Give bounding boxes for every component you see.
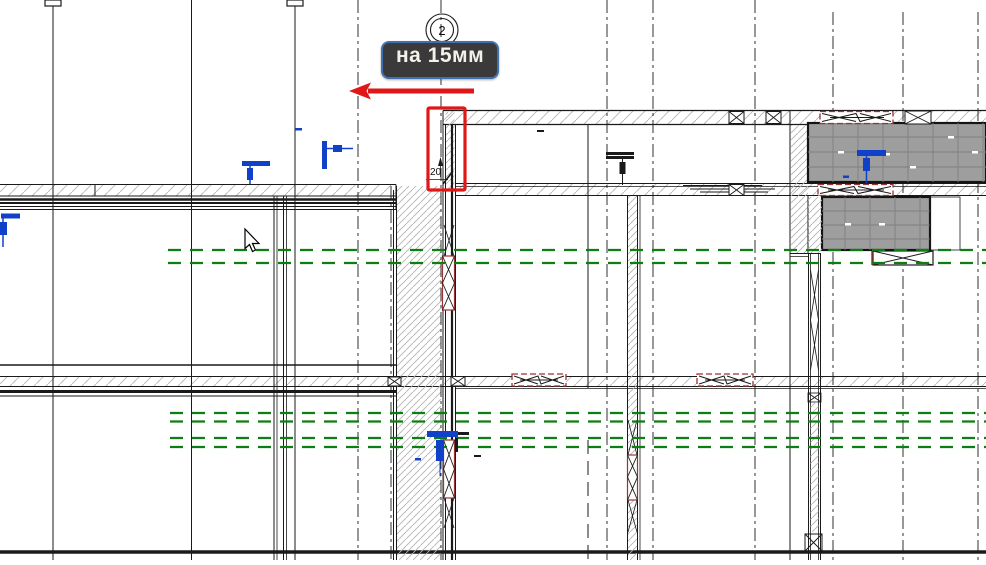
hidden-lines-green[interactable] [168, 250, 986, 447]
wall-horizontal-mid-right[interactable] [456, 184, 986, 196]
span-symbol-blue-3[interactable] [0, 214, 20, 248]
move-direction-arrow [349, 83, 474, 100]
plan-view-canvas[interactable]: 20 2 на 15мм [0, 0, 986, 560]
plan-drawing: 20 2 [0, 0, 986, 560]
mouse-cursor-icon [245, 229, 259, 252]
wall-vertical-main[interactable] [394, 186, 442, 560]
wall-vertical-main-finish-layer[interactable] [443, 111, 456, 561]
spot-symbol-black[interactable] [606, 152, 634, 185]
dimension-text: 20 [430, 167, 442, 178]
wall-horizontal-left[interactable] [0, 185, 396, 211]
grid-bubble-label: 2 [438, 23, 445, 38]
tick-marks-black [455, 130, 544, 457]
floor-slab-upper[interactable] [808, 123, 986, 182]
drag-distance-tooltip: на 15мм [381, 41, 499, 79]
span-symbol-blue-4[interactable] [295, 128, 302, 131]
floor-slab-lower[interactable] [808, 197, 960, 253]
span-symbol-blue-2[interactable] [322, 141, 353, 169]
wall-horizontal-bottom[interactable] [0, 365, 986, 396]
span-symbol-blue-1[interactable] [242, 161, 270, 184]
